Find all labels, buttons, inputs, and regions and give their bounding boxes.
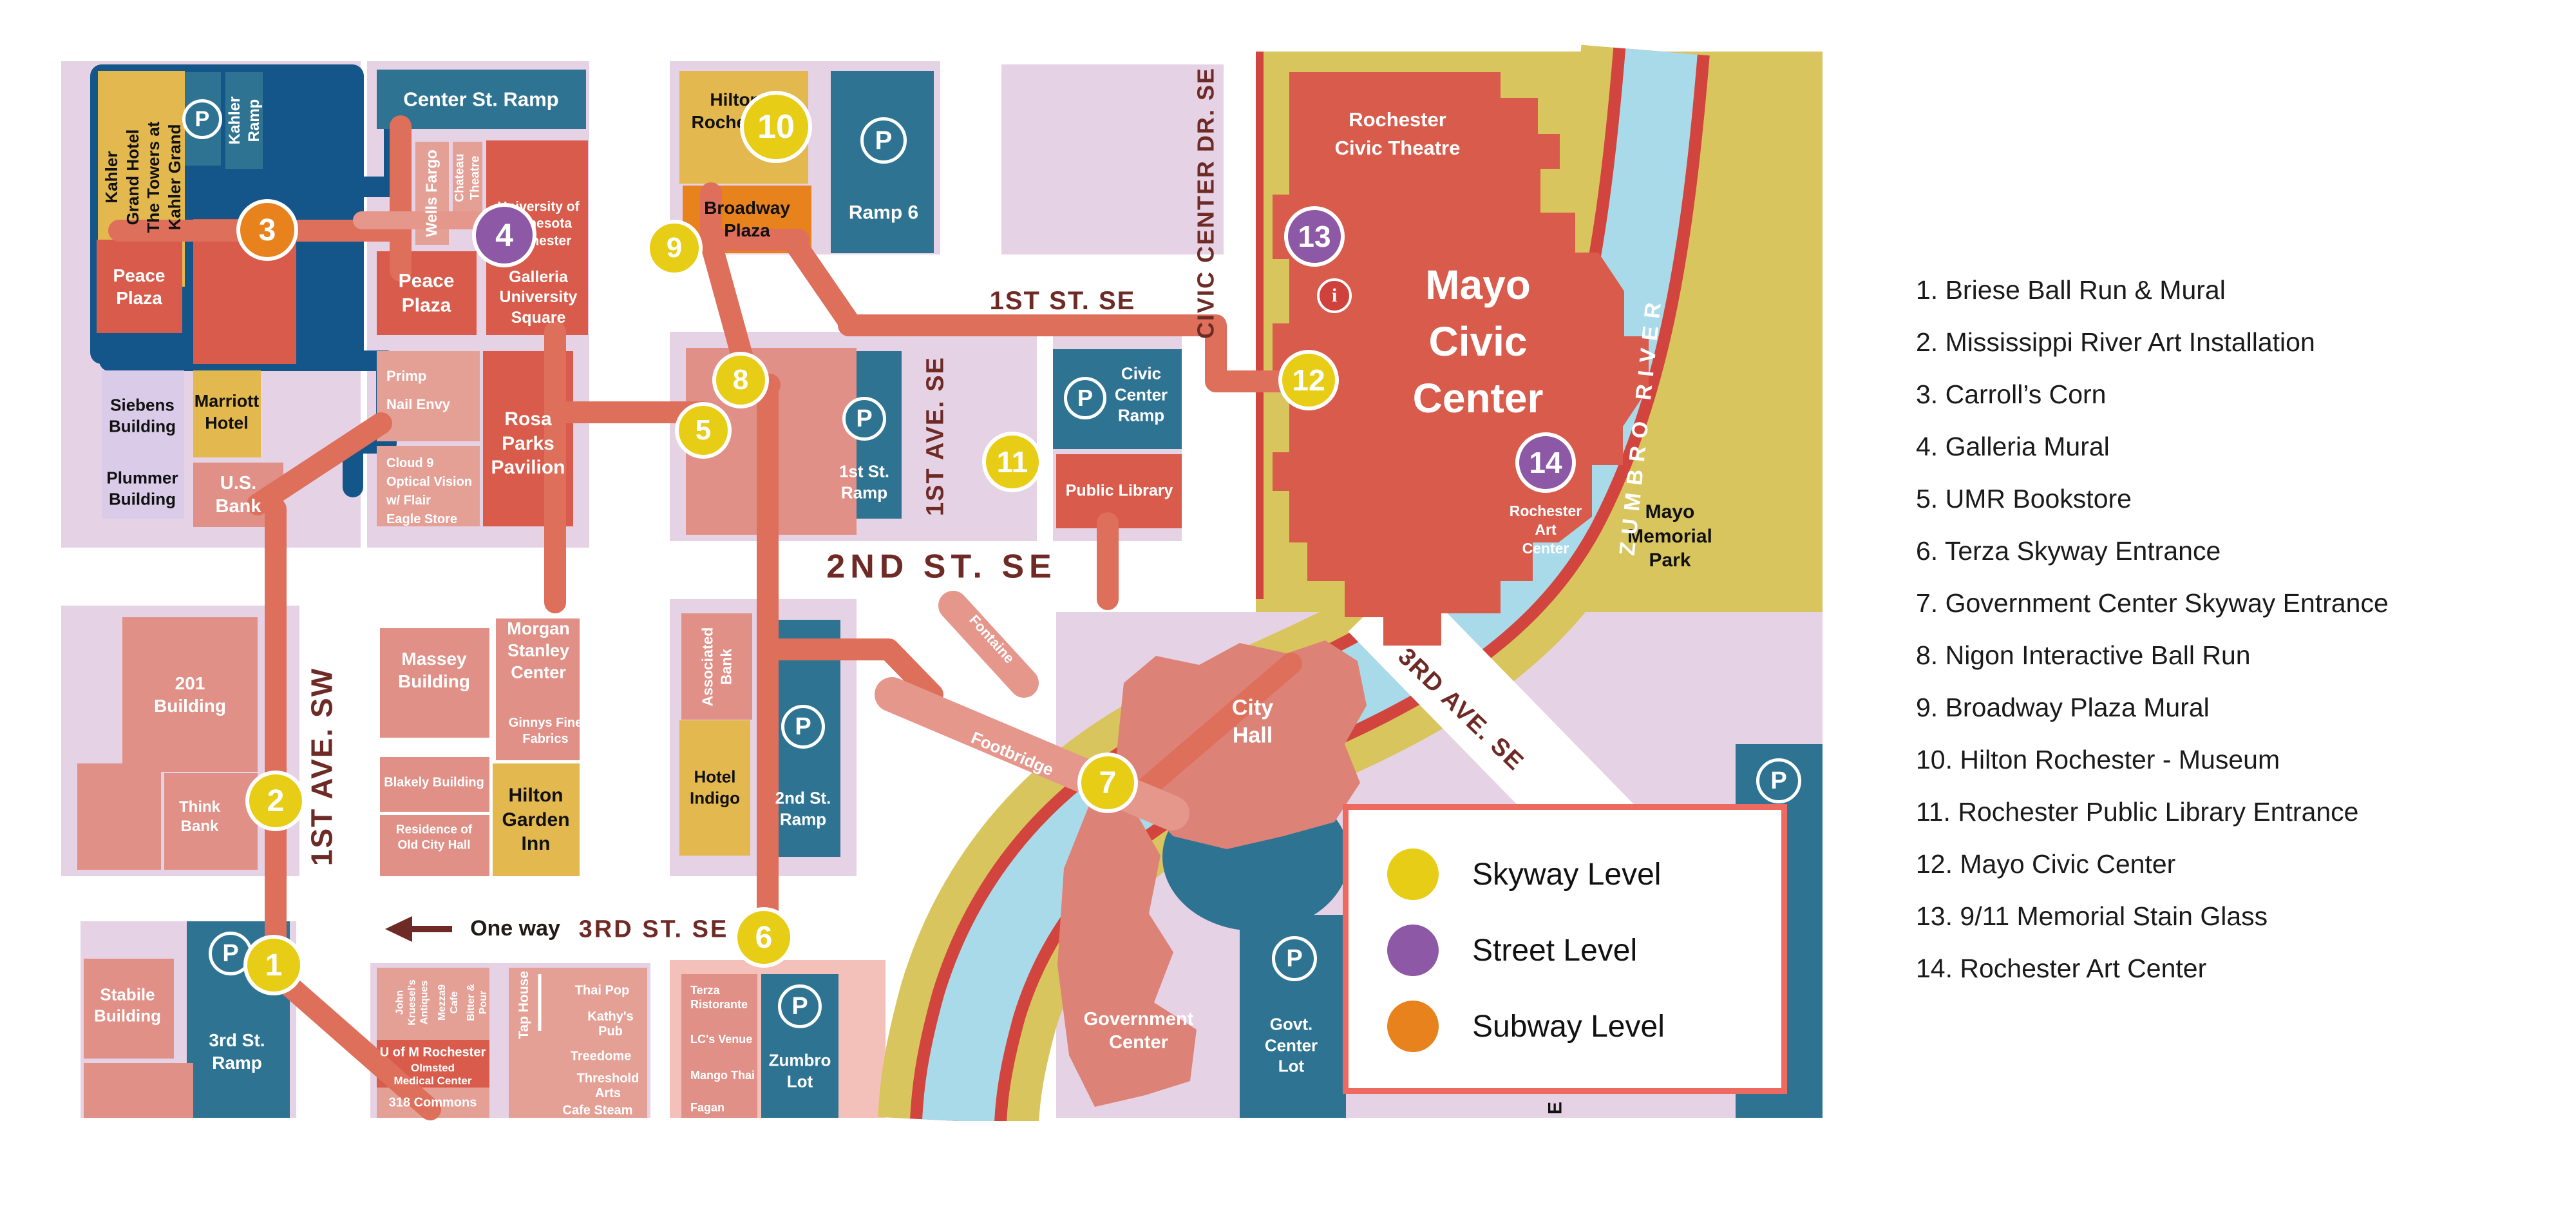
marker-4-street: 4 (472, 203, 536, 267)
201-building-label: 201 Building (154, 672, 226, 717)
mayo-civic-center-label: Mayo Civic Center (1413, 256, 1544, 427)
poi-item-7: 7. Government Center Skyway Entrance (1916, 577, 2389, 629)
john-kruesels-label: John Kruesel's Antiques (394, 979, 431, 1025)
street-1st-st-se: 1ST ST. SE (990, 285, 1136, 317)
318-commons-label: 318 Commons (389, 1095, 477, 1111)
arrow-head (385, 916, 412, 942)
olmsted-label: Olmsted Medical Center (394, 1062, 472, 1088)
marker-3-subway: 3 (236, 199, 298, 261)
one-way-arrow (385, 916, 452, 942)
morgan-stanley-label: Morgan Stanley Center (507, 618, 570, 683)
government-center-label: Government Center (1084, 1008, 1194, 1055)
mango-thai-label: Mango Thai (690, 1068, 755, 1083)
chateau-theatre-label: Chateau Theatre (452, 154, 483, 202)
3rd-st-ramp-label: 3rd St. Ramp (209, 1029, 265, 1074)
primp-nailenvy-label: Primp Nail Envy (386, 362, 450, 419)
poi-item-1: 1. Briese Ball Run & Mural (1916, 264, 2389, 316)
residence-label: Residence of Old City Hall (396, 822, 472, 853)
parking-icon-right-lot: P (1756, 758, 1801, 803)
poi-item-8: 8. Nigon Interactive Ball Run (1916, 629, 2389, 682)
marker-1-skyway: 1 (243, 935, 304, 995)
plummer-label: Plummer Building (106, 468, 178, 510)
marker-2-skyway: 2 (245, 771, 306, 831)
marker-8-skyway: 8 (712, 352, 769, 408)
1st-st-ramp-label: 1st St. Ramp (839, 461, 889, 503)
street-3rd-st-se: 3RD ST. SE (579, 914, 729, 945)
massey-label: Massey Building (398, 647, 470, 693)
street-fragment-e: E (1543, 1102, 1567, 1115)
parking-icon-1st-ramp: P (842, 397, 886, 441)
marker-9-skyway: 9 (646, 220, 703, 276)
skyway-level-dot (1387, 848, 1439, 900)
civic-center-ramp-label: Civic Center Ramp (1115, 363, 1168, 426)
city-hall-label: City Hall (1232, 695, 1273, 749)
rosa-parks-label: Rosa Parks Pavilion (491, 407, 565, 480)
us-bank-label: U.S. Bank (216, 472, 261, 519)
marker-12-skyway: 12 (1278, 350, 1339, 410)
poi-item-14: 14. Rochester Art Center (1916, 943, 2389, 995)
poi-item-2: 2. Mississippi River Art Installation (1916, 316, 2389, 369)
parking-icon-kahler: P (182, 99, 222, 139)
peace-plaza-w-label: Peace Plaza (113, 264, 166, 309)
lcs-venue-label: LC's Venue (690, 1032, 752, 1047)
kathys-pub-label: Kathy's Pub (587, 1010, 633, 1039)
think-bank-label: Think Bank (179, 798, 220, 836)
legend-row-skyway: Skyway Level (1349, 836, 1781, 913)
thai-pop-label: Thai Pop (575, 983, 629, 999)
skyway-level-label: Skyway Level (1472, 857, 1661, 892)
poi-item-3: 3. Carroll’s Corn (1916, 369, 2389, 421)
poi-item-4: 4. Galleria Mural (1916, 421, 2389, 473)
wells-fargo-label: Wells Fargo (422, 149, 442, 237)
legend-row-street: Street Level (1349, 912, 1781, 989)
mezza9-label: Mezza9 Cafe (436, 984, 460, 1021)
poi-item-12: 12. Mayo Civic Center (1916, 838, 2389, 890)
rochester-art-center-label: Rochester Art Center (1510, 502, 1582, 557)
street-2nd-st-se: 2ND ST. SE (826, 546, 1056, 588)
street-level-label: Street Level (1472, 933, 1637, 968)
parking-icon-civic-ramp: P (1064, 377, 1106, 419)
parking-icon-zumbro-lot: P (778, 984, 822, 1028)
legend-row-subway: Subway Level (1349, 988, 1781, 1065)
associated-bank-label: Associated Bank (698, 628, 735, 707)
2nd-st-ramp-label: 2nd St. Ramp (775, 788, 831, 830)
tap-house-label: Tap House (516, 971, 533, 1039)
marriott-label: Marriott Hotel (194, 390, 260, 434)
treedome-label: Treedome (571, 1049, 631, 1065)
kahler-ramp-label: Kahler Ramp (225, 97, 264, 145)
marker-7-skyway: 7 (1077, 753, 1138, 813)
zumbro-lot-label: Zumbro Lot (769, 1050, 831, 1092)
poi-item-9: 9. Broadway Plaza Mural (1916, 682, 2389, 734)
govt-center-lot-label: Govt. Center Lot (1265, 1013, 1318, 1077)
civic-theatre-label: Rochester Civic Theatre (1335, 106, 1461, 162)
poi-item-11: 11. Rochester Public Library Entrance (1916, 786, 2389, 838)
bitter-pour-label: Bitter & Pour (465, 984, 489, 1021)
poi-item-5: 5. UMR Bookstore (1916, 473, 2389, 525)
terza-label: Terza Ristorante (690, 983, 748, 1011)
peace-plaza-e-label: Peace Plaza (399, 269, 455, 318)
parking-icon-ramp6: P (860, 117, 907, 164)
poi-item-6: 6. Terza Skyway Entrance (1916, 525, 2389, 577)
marker-10-skyway: 10 (740, 91, 812, 163)
street-1st-ave-sw: 1ST AVE. SW (303, 667, 341, 866)
cafe-steam-label: Cafe Steam (563, 1103, 633, 1119)
kahler-hotel-label: Kahler Grand Hotel The Towers at Kahler … (101, 68, 185, 287)
subway-level-label: Subway Level (1472, 1009, 1665, 1044)
center-st-ramp-label: Center St. Ramp (403, 88, 558, 113)
hilton-garden-label: Hilton Garden Inn (502, 783, 569, 856)
uofm-label: U of M Rochester (380, 1045, 486, 1061)
subway-level-dot (1387, 1001, 1439, 1052)
public-library-label: Public Library (1066, 481, 1173, 501)
street-civic-center-dr: CIVIC CENTER DR. SE (1191, 67, 1220, 339)
broadway-plaza-label: Broadway Plaza (704, 197, 790, 242)
parking-icon-govt-lot: P (1272, 936, 1317, 981)
street-1st-ave-se: 1ST AVE. SE (920, 356, 951, 516)
street-one-way: One way (470, 915, 560, 943)
legend-box: Skyway Level Street Level Subway Level (1343, 804, 1787, 1094)
hotel-indigo-label: Hotel Indigo (690, 767, 740, 809)
poi-list: 1. Briese Ball Run & Mural 2. Mississipp… (1916, 264, 2389, 995)
parking-icon-2nd-ramp: P (781, 705, 825, 749)
info-icon: i (1317, 278, 1352, 313)
poi-item-13: 13. 9/11 Memorial Stain Glass (1916, 890, 2389, 943)
skyway-map-page: Kahler Grand Hotel The Towers at Kahler … (0, 0, 2576, 1208)
marker-5-skyway: 5 (675, 402, 732, 459)
stabile-label: Stabile Building (94, 984, 161, 1026)
blakely-label: Blakely Building (384, 775, 484, 791)
galleria-square-label: Galleria University Square (500, 267, 578, 328)
threshold-arts-label: Threshold Arts (577, 1071, 639, 1101)
street-level-dot (1387, 925, 1439, 976)
ginnys-label: Ginnys Fine Fabrics (509, 715, 582, 747)
fagan-label: Fagan (690, 1100, 724, 1115)
marker-11-skyway: 11 (982, 432, 1043, 492)
ramp6-label: Ramp 6 (849, 200, 918, 225)
marker-14-street: 14 (1515, 432, 1576, 493)
cloud9-group-label: Cloud 9 Optical Vision w/ Flair Eagle St… (386, 454, 472, 529)
marker-13-street: 13 (1284, 206, 1345, 267)
poi-item-10: 10. Hilton Rochester - Museum (1916, 734, 2389, 786)
marker-6-skyway: 6 (734, 907, 794, 968)
siebens-label: Siebens Building (109, 395, 176, 437)
